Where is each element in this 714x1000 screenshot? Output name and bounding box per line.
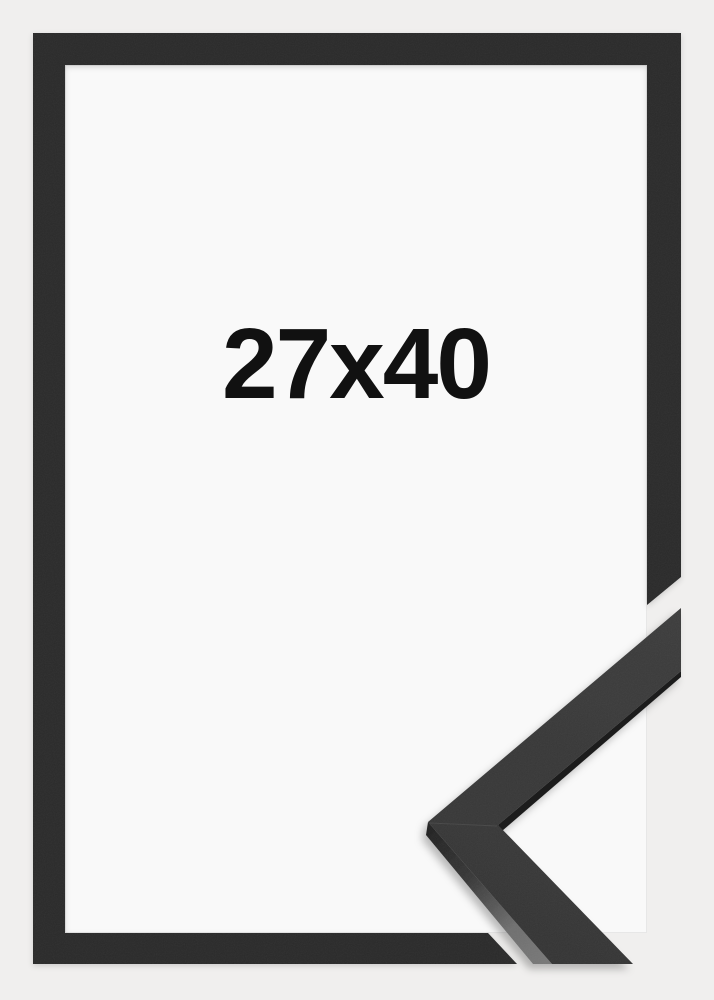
frame-opening <box>65 65 647 933</box>
size-label: 27x40 <box>65 314 647 414</box>
product-photo: 27x40 <box>0 0 714 1000</box>
frame-illustration <box>0 0 714 1000</box>
